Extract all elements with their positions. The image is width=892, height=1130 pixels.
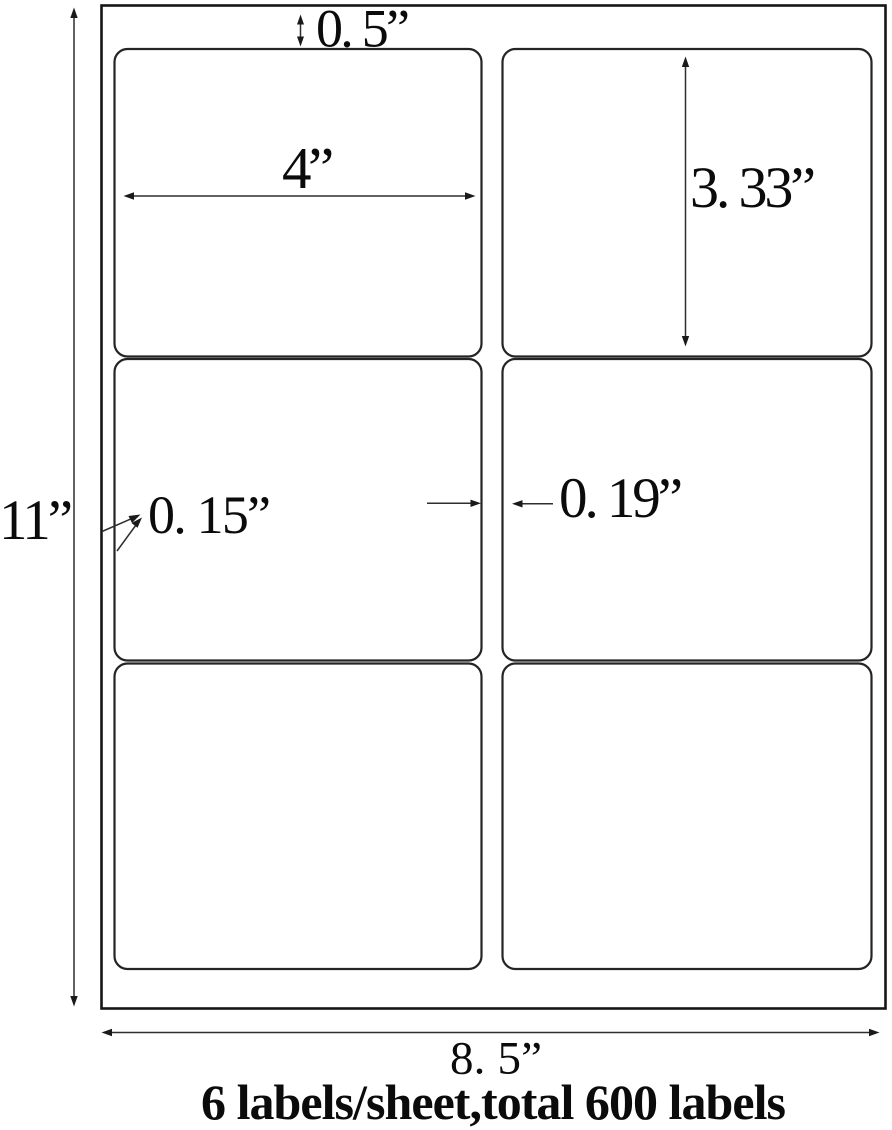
svg-text:”: ” xyxy=(308,135,334,201)
svg-text:0. 15”: 0. 15” xyxy=(148,485,271,545)
svg-text:0. 5”: 0. 5” xyxy=(316,0,410,59)
svg-text:0. 19”: 0. 19” xyxy=(559,467,683,530)
svg-text:3. 33”: 3. 33” xyxy=(690,155,816,220)
svg-text:11”: 11” xyxy=(0,489,73,552)
svg-text:6 labels/sheet,total 600 label: 6 labels/sheet,total 600 labels xyxy=(201,1074,786,1130)
